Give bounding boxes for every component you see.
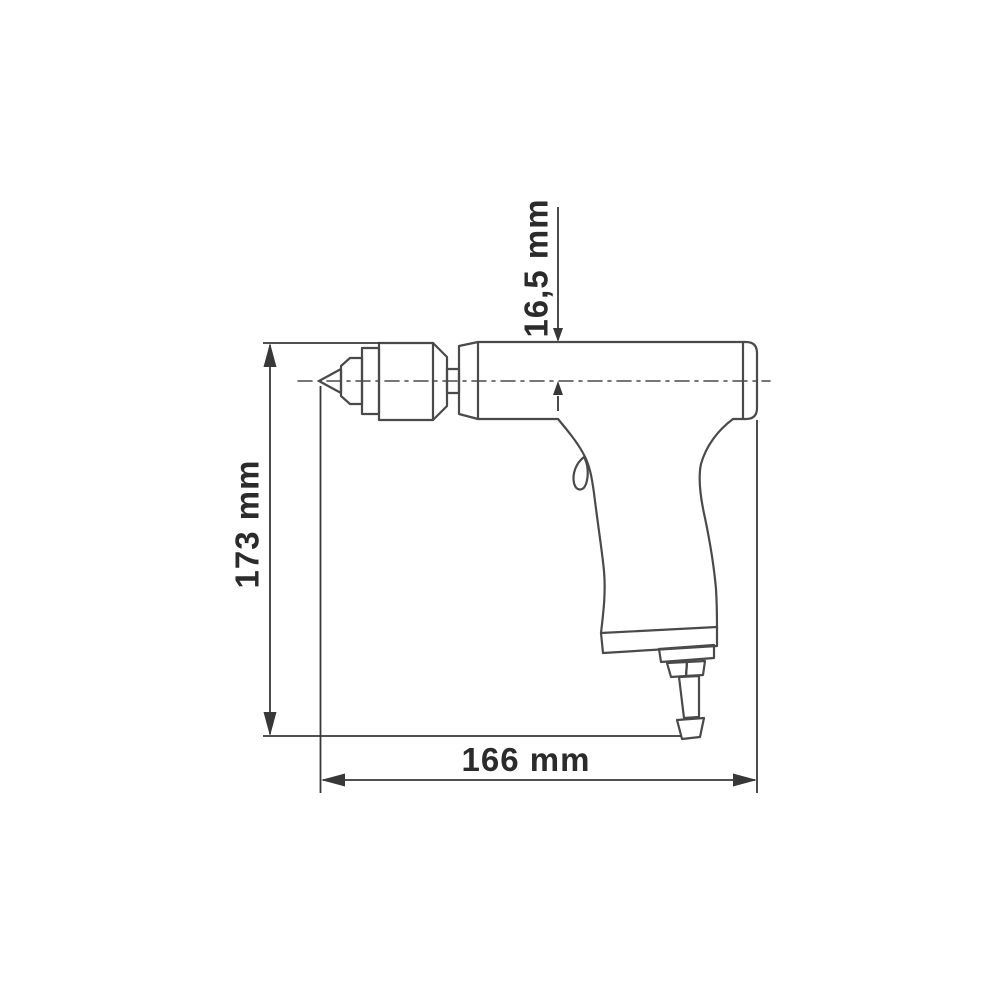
inlet-hex-nut-right bbox=[686, 661, 705, 676]
drawing-canvas: 173 mm 166 mm 16,5 mm bbox=[0, 0, 1000, 1000]
dimension-height bbox=[263, 343, 681, 736]
handle bbox=[558, 419, 733, 653]
inlet-hex-nut-left bbox=[667, 662, 687, 677]
technical-drawing: 173 mm 166 mm 16,5 mm bbox=[0, 0, 1000, 1000]
offset-arrow-up-icon bbox=[553, 381, 563, 395]
height-arrow-down-icon bbox=[264, 712, 277, 736]
air-inlet-fitting bbox=[659, 645, 714, 739]
offset-arrow-down-icon bbox=[553, 328, 563, 342]
handle-left-edge bbox=[558, 419, 605, 633]
height-dimension-label: 173 mm bbox=[229, 460, 266, 589]
length-arrow-left-icon bbox=[321, 774, 345, 787]
hose-barb-tip bbox=[677, 718, 704, 739]
inlet-stem bbox=[679, 676, 699, 718]
axis-offset-dimension-label: 16,5 mm bbox=[518, 198, 555, 337]
dimension-labels: 173 mm 166 mm 16,5 mm bbox=[229, 198, 591, 778]
height-arrow-up-icon bbox=[264, 343, 277, 367]
tool-outline bbox=[298, 342, 770, 739]
dimension-length bbox=[321, 386, 758, 793]
handle-right-edge bbox=[700, 419, 733, 628]
length-dimension-label: 166 mm bbox=[462, 741, 591, 778]
trigger bbox=[573, 457, 587, 490]
length-arrow-right-icon bbox=[733, 774, 757, 787]
